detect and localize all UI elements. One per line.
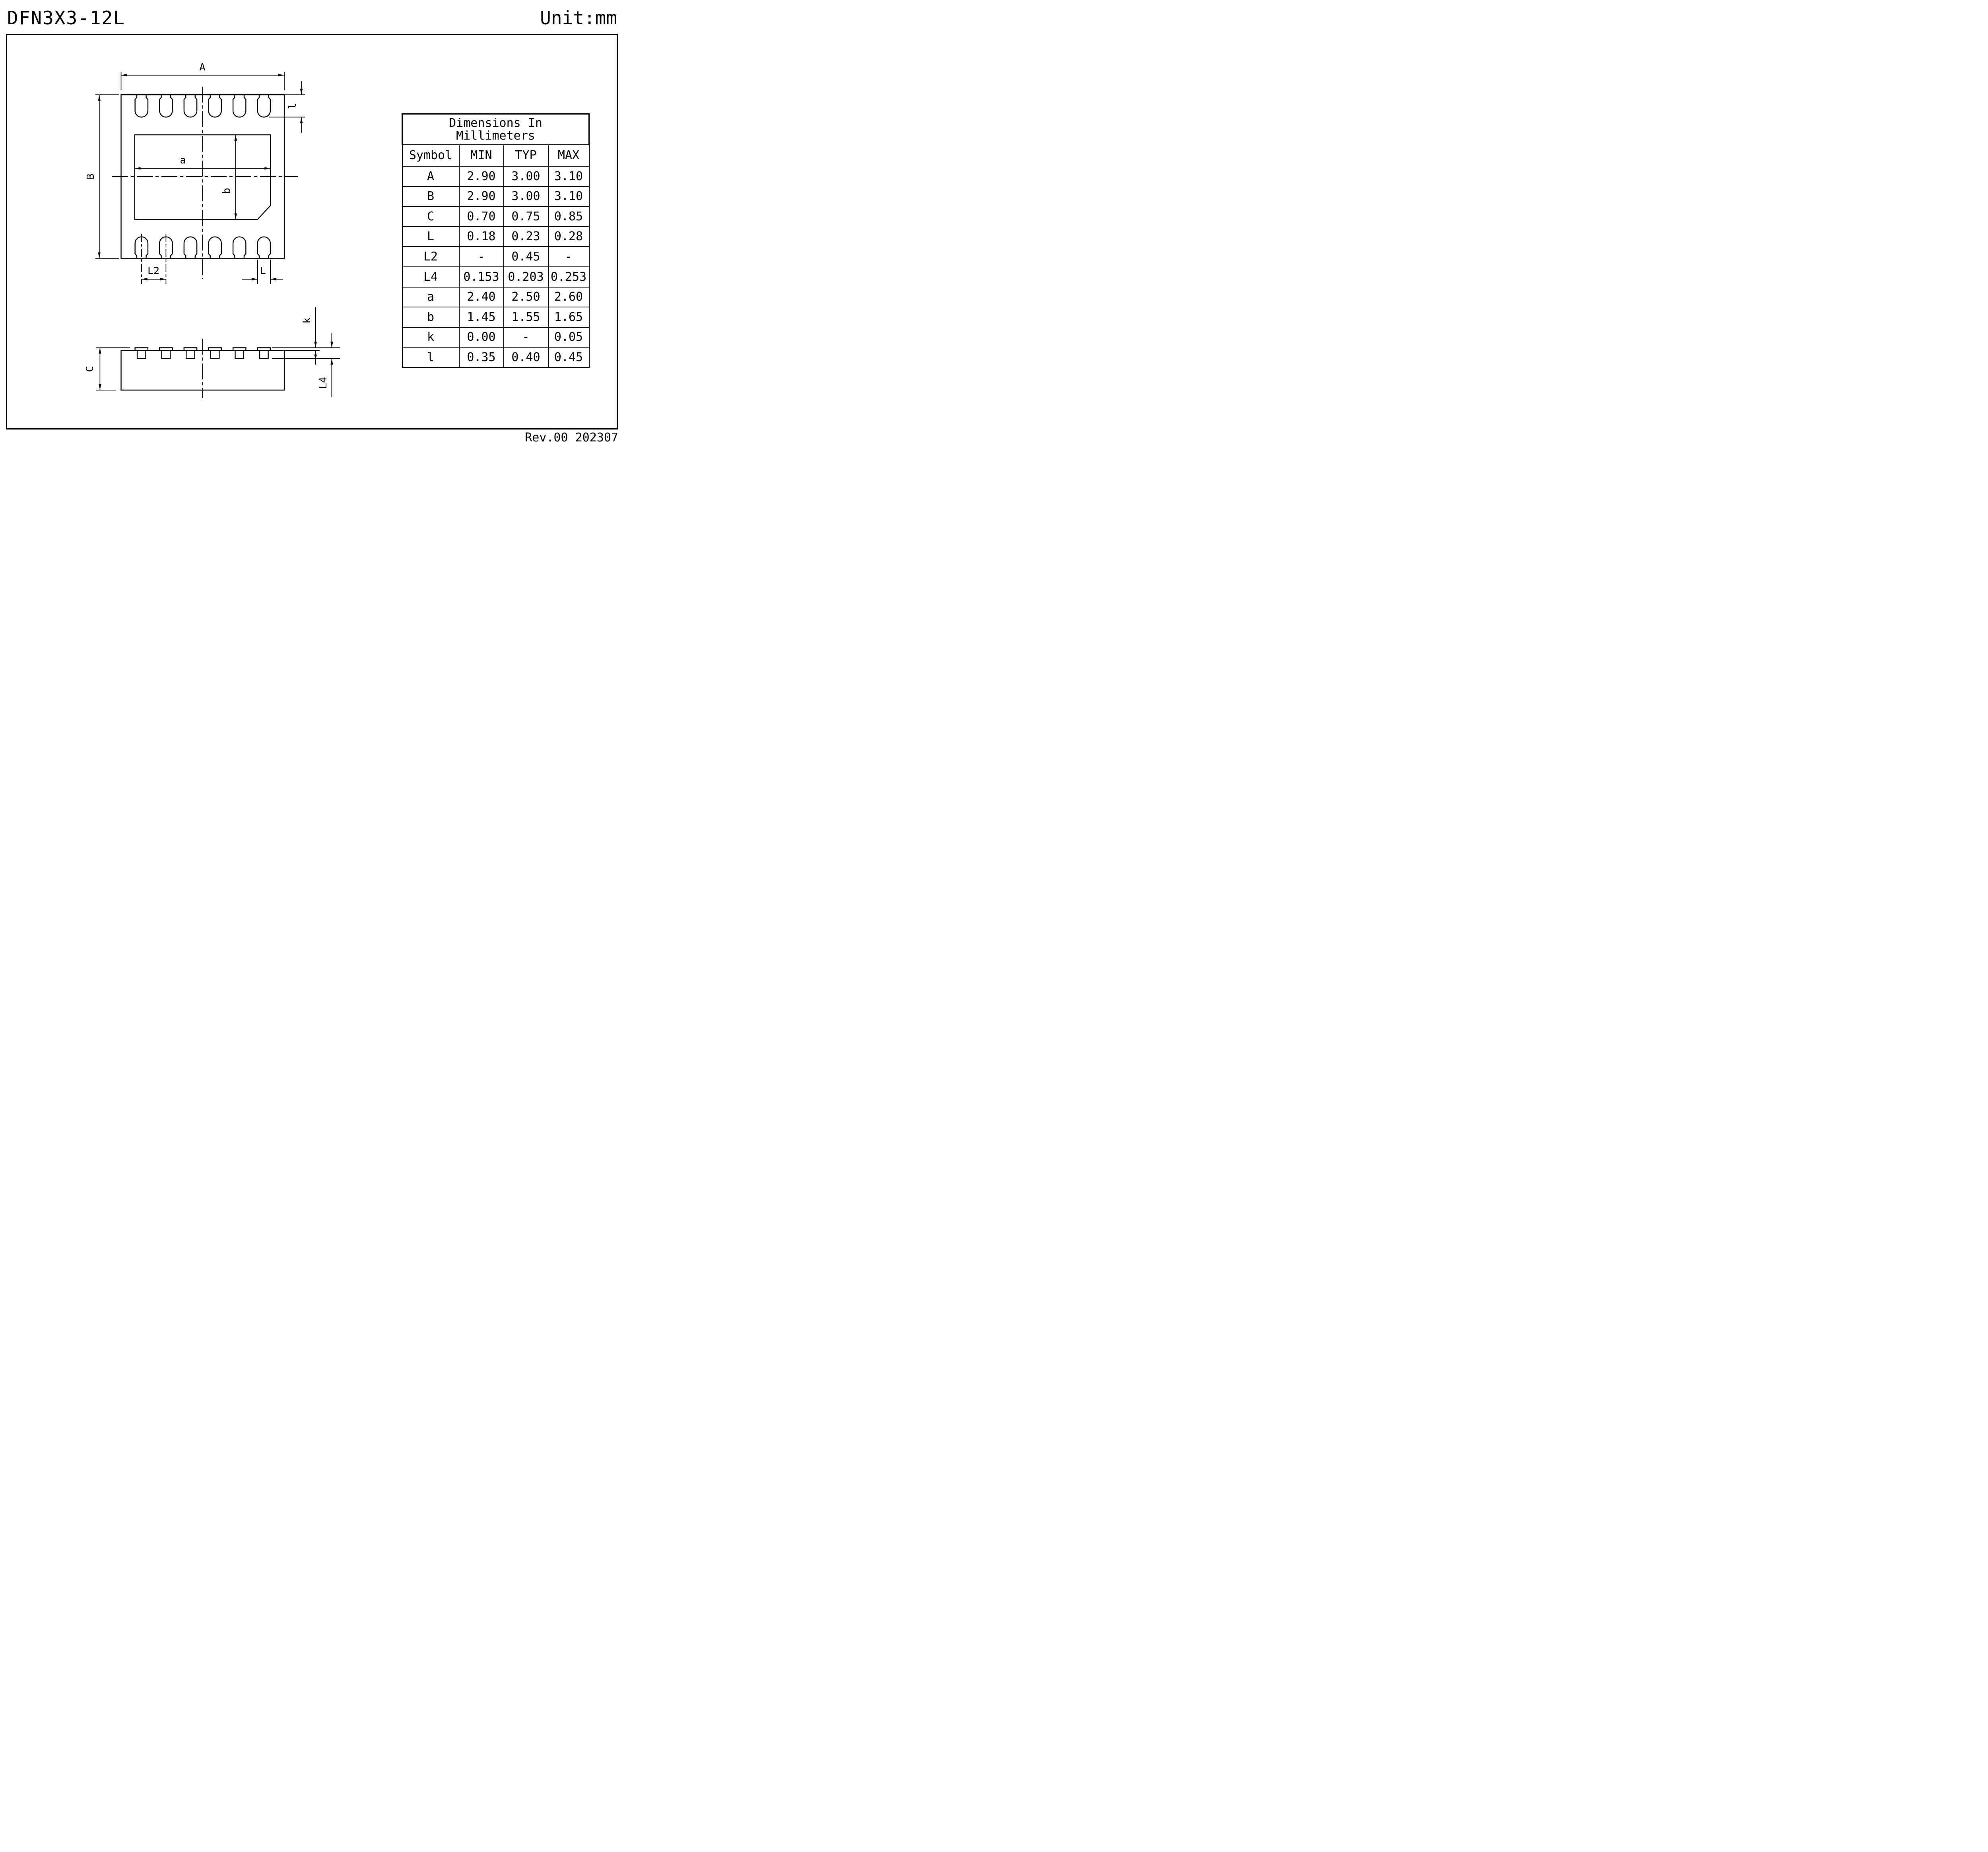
pin-pad-top-3 bbox=[184, 95, 197, 117]
table-row: L 0.18 0.23 0.28 bbox=[402, 227, 589, 247]
cell-min: 0.00 bbox=[459, 327, 504, 348]
table-row: k 0.00 - 0.05 bbox=[402, 327, 589, 348]
side-lead-3 bbox=[184, 348, 197, 358]
cell-max: 2.60 bbox=[548, 287, 589, 307]
cell-typ: 2.50 bbox=[504, 287, 548, 307]
dim-label-a: a bbox=[180, 154, 186, 166]
pin-pad-bottom-5 bbox=[233, 237, 246, 258]
side-lead-6 bbox=[258, 348, 270, 358]
cell-min: 0.70 bbox=[459, 206, 504, 227]
cell-max: 0.45 bbox=[548, 347, 589, 367]
table-row: l 0.35 0.40 0.45 bbox=[402, 347, 589, 367]
dim-label-A: A bbox=[199, 61, 205, 73]
cell-min: 2.40 bbox=[459, 287, 504, 307]
dim-label-L: L bbox=[260, 265, 266, 276]
package-drawing-sheet: DFN3X3-12L Unit:mm Rev.00 202307 bbox=[0, 0, 623, 480]
dimension-L4: L4 bbox=[317, 333, 333, 397]
cell-min: 0.35 bbox=[459, 347, 504, 367]
cell-typ: 0.75 bbox=[504, 206, 548, 227]
pin-pad-top-6 bbox=[258, 95, 270, 117]
dim-label-L4: L4 bbox=[317, 377, 329, 389]
dim-label-k: k bbox=[301, 317, 313, 323]
table-row: L2 - 0.45 - bbox=[402, 247, 589, 267]
pin-pad-top-2 bbox=[159, 95, 172, 117]
table-row: b 1.45 1.55 1.65 bbox=[402, 307, 589, 327]
dimension-L2: L2 bbox=[142, 265, 166, 280]
dimension-k: k bbox=[301, 307, 317, 365]
pin-pad-top-5 bbox=[233, 95, 246, 117]
dimension-L: L bbox=[242, 260, 283, 284]
dimension-l-lowercase: l bbox=[269, 81, 305, 133]
cell-symbol: L4 bbox=[402, 267, 459, 287]
cell-symbol: b bbox=[402, 307, 459, 327]
side-lead-1 bbox=[135, 348, 148, 358]
side-lead-2 bbox=[159, 348, 172, 358]
cell-typ: 3.00 bbox=[504, 187, 548, 207]
table-title-line2: Millimeters bbox=[403, 130, 588, 142]
table-row: L4 0.153 0.203 0.253 bbox=[402, 267, 589, 287]
cell-typ: 0.23 bbox=[504, 227, 548, 247]
dim-label-L2: L2 bbox=[148, 265, 159, 276]
cell-max: 0.253 bbox=[548, 267, 589, 287]
cell-symbol: L2 bbox=[402, 247, 459, 267]
cell-max: - bbox=[548, 247, 589, 267]
pin-pad-bottom-3 bbox=[184, 237, 197, 258]
cell-symbol: a bbox=[402, 287, 459, 307]
cell-max: 0.85 bbox=[548, 206, 589, 227]
table-row: B 2.90 3.00 3.10 bbox=[402, 187, 589, 207]
dim-label-B: B bbox=[85, 173, 96, 179]
col-header-max: MAX bbox=[548, 145, 589, 166]
side-reference-lines bbox=[272, 348, 340, 358]
pin-pad-top-4 bbox=[208, 95, 221, 117]
cell-min: 0.153 bbox=[459, 267, 504, 287]
side-lead-5 bbox=[233, 348, 246, 358]
cell-min: 2.90 bbox=[459, 187, 504, 207]
cell-typ: 0.45 bbox=[504, 247, 548, 267]
col-header-min: MIN bbox=[459, 145, 504, 166]
dimensions-table: Dimensions In Millimeters Symbol MIN TYP… bbox=[402, 113, 590, 368]
cell-symbol: B bbox=[402, 187, 459, 207]
cell-symbol: L bbox=[402, 227, 459, 247]
cell-max: 0.05 bbox=[548, 327, 589, 348]
cell-max: 3.10 bbox=[548, 187, 589, 207]
cell-min: 2.90 bbox=[459, 166, 504, 187]
cell-typ: 1.55 bbox=[504, 307, 548, 327]
cell-typ: 0.203 bbox=[504, 267, 548, 287]
cell-min: - bbox=[459, 247, 504, 267]
pin-pad-bottom-4 bbox=[208, 237, 221, 258]
dimension-A: A bbox=[121, 61, 285, 90]
pin-pad-bottom-6 bbox=[258, 237, 270, 258]
cell-typ: 0.40 bbox=[504, 347, 548, 367]
table-title-cell: Dimensions In Millimeters bbox=[402, 114, 589, 145]
cell-max: 0.28 bbox=[548, 227, 589, 247]
table-title-row: Dimensions In Millimeters bbox=[402, 114, 589, 145]
table-title-line1: Dimensions In bbox=[403, 117, 588, 130]
col-header-typ: TYP bbox=[504, 145, 548, 166]
cell-max: 3.10 bbox=[548, 166, 589, 187]
cell-min: 0.18 bbox=[459, 227, 504, 247]
cell-typ: 3.00 bbox=[504, 166, 548, 187]
dim-label-l: l bbox=[287, 103, 298, 109]
cell-symbol: A bbox=[402, 166, 459, 187]
cell-symbol: k bbox=[402, 327, 459, 348]
cell-max: 1.65 bbox=[548, 307, 589, 327]
cell-symbol: C bbox=[402, 206, 459, 227]
cell-symbol: l bbox=[402, 347, 459, 367]
table-header-row: Symbol MIN TYP MAX bbox=[402, 145, 589, 166]
cell-min: 1.45 bbox=[459, 307, 504, 327]
pin-pad-top-1 bbox=[135, 95, 148, 117]
side-lead-4 bbox=[208, 348, 221, 358]
table-row: a 2.40 2.50 2.60 bbox=[402, 287, 589, 307]
cell-typ: - bbox=[504, 327, 548, 348]
dimension-b: b bbox=[221, 135, 237, 220]
dim-label-b: b bbox=[221, 188, 232, 194]
col-header-symbol: Symbol bbox=[402, 145, 459, 166]
table-row: C 0.70 0.75 0.85 bbox=[402, 206, 589, 227]
dimension-C: C bbox=[84, 348, 130, 390]
dim-label-C: C bbox=[84, 366, 95, 372]
table-row: A 2.90 3.00 3.10 bbox=[402, 166, 589, 187]
